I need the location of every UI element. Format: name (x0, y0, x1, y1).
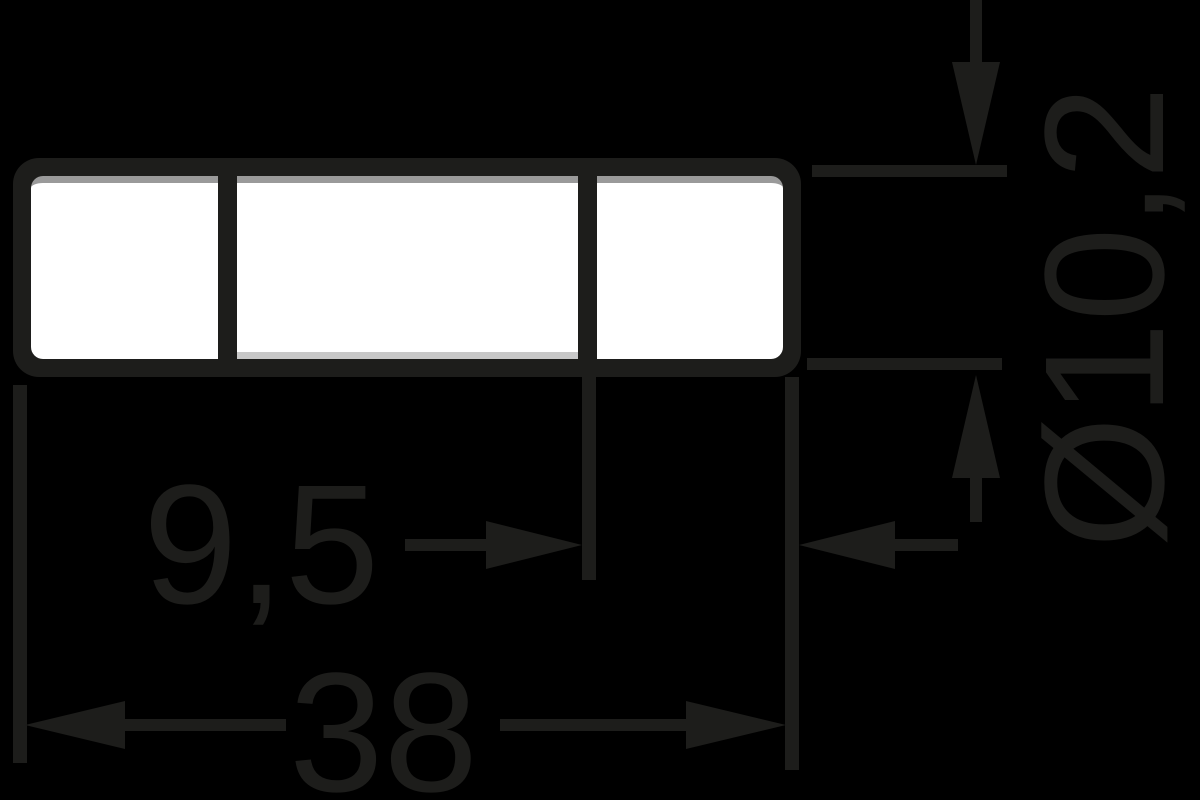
arrow-down-icon (952, 62, 1000, 165)
diameter-label: Ø10,2 (1020, 77, 1190, 557)
length-dim-line-right (500, 719, 690, 731)
fuse-left-cap (31, 176, 218, 359)
fuse-body-outline (13, 158, 801, 377)
cap-length-label: 9,5 (143, 460, 379, 630)
length-arrow-left-icon (25, 701, 125, 749)
extension-line-diameter-top (812, 165, 1007, 177)
length-dim-line-left (118, 719, 286, 731)
fuse-right-cap (597, 176, 783, 359)
arrow-right-icon (486, 521, 582, 569)
arrow-left-icon (799, 521, 895, 569)
extension-line-diameter-bottom (807, 358, 1002, 370)
overall-length-label: 38 (289, 648, 478, 800)
cap-dim-tail-line (888, 539, 958, 551)
diameter-dim-line-bottom (970, 470, 982, 522)
fuse-body-center (237, 176, 578, 359)
diameter-dim-line-top (970, 0, 982, 62)
arrow-up-icon (952, 375, 1000, 478)
cap-dim-line (405, 539, 495, 551)
extension-line-right (785, 377, 799, 770)
extension-line-cap (582, 377, 596, 580)
technical-drawing: 9,5 38 Ø10,2 (0, 0, 1200, 800)
length-arrow-right-icon (686, 701, 786, 749)
